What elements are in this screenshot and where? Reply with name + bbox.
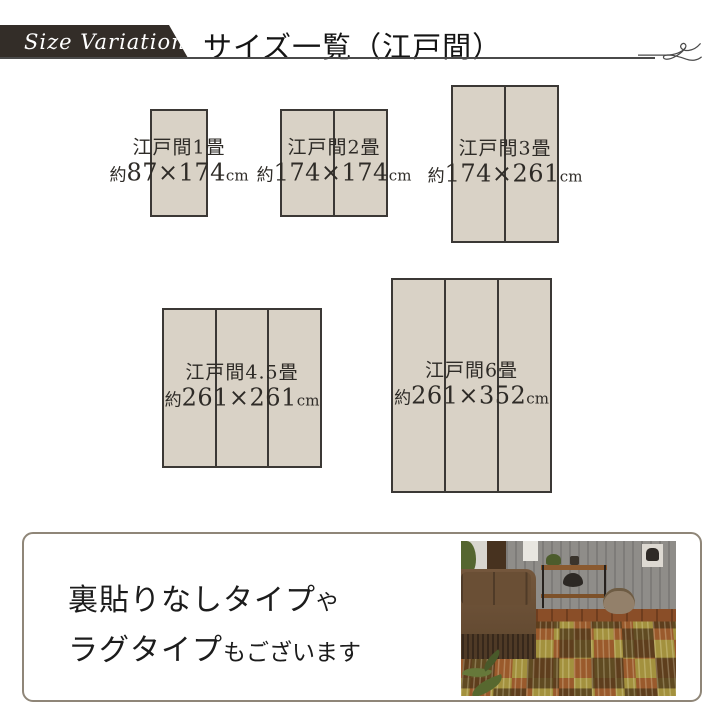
photo-sofa (461, 569, 536, 659)
flourish-ornament-icon (638, 30, 710, 74)
size-diagram-edoma-2jo: 江戸間2畳 約174×174cm (280, 109, 388, 217)
photo-hanging-cloth (523, 541, 538, 561)
dims-value: 174×174 (274, 159, 389, 187)
photo-basket (603, 588, 635, 614)
approx-prefix: 約 (428, 167, 445, 187)
unit-label: cm (526, 389, 549, 407)
note-line1-small: や (316, 591, 338, 616)
header-divider-line (0, 57, 655, 59)
page-title: サイズ一覧（江戸間） (203, 24, 502, 66)
size-label: 江戸間4.5畳 約261×261cm (165, 362, 320, 415)
size-name: 江戸間4.5畳 (165, 362, 320, 384)
other-types-note-box: 裏貼りなしタイプや ラグタイプもございます (22, 532, 702, 702)
unit-label: cm (297, 392, 320, 410)
size-dimensions: 約87×174cm (109, 159, 248, 190)
note-line-1: 裏貼りなしタイプや (68, 578, 361, 628)
page: Size Variation サイズ一覧（江戸間） 江戸間1畳 約87×174c… (0, 0, 720, 720)
shelf-leg (542, 565, 544, 607)
note-line2-main: ラグタイプ (68, 633, 223, 668)
approx-prefix: 約 (257, 166, 274, 186)
photo-shelf-rack (541, 550, 608, 607)
size-dimensions: 約261×352cm (394, 381, 549, 412)
shelf-plant (546, 554, 561, 565)
unit-label: cm (389, 167, 412, 185)
size-dimensions: 約174×261cm (428, 160, 583, 191)
shelf-pot (570, 556, 579, 565)
room-photo (461, 541, 676, 696)
other-types-note-text: 裏貼りなしタイプや ラグタイプもございます (68, 578, 361, 678)
size-label: 江戸間1畳 約87×174cm (109, 137, 248, 190)
size-name: 江戸間2畳 (257, 137, 412, 159)
size-name: 江戸間1畳 (109, 137, 248, 159)
note-line2-small: もございます (223, 640, 361, 666)
approx-prefix: 約 (394, 388, 411, 408)
approx-prefix: 約 (165, 391, 182, 411)
size-name: 江戸間3畳 (428, 138, 583, 160)
shelf-board (541, 565, 608, 570)
dims-value: 261×352 (411, 381, 526, 409)
dims-value: 174×261 (445, 160, 560, 188)
size-label: 江戸間6畳 約261×352cm (394, 359, 549, 412)
size-variation-ribbon: Size Variation (0, 25, 188, 58)
unit-label: cm (226, 167, 249, 185)
size-diagram-edoma-1jo: 江戸間1畳 約87×174cm (150, 109, 208, 217)
size-diagram-edoma-4-5jo: 江戸間4.5畳 約261×261cm (162, 308, 322, 468)
dims-value: 87×174 (126, 159, 225, 187)
shelf-board (541, 594, 608, 599)
approx-prefix: 約 (109, 166, 126, 186)
size-label: 江戸間2畳 約174×174cm (257, 137, 412, 190)
photo-wall-hanging (642, 544, 664, 567)
size-diagram-edoma-3jo: 江戸間3畳 約174×261cm (451, 85, 559, 243)
size-name: 江戸間6畳 (394, 359, 549, 381)
unit-label: cm (560, 168, 583, 186)
shelf-pan (563, 573, 583, 587)
size-diagram-edoma-6jo: 江戸間6畳 約261×352cm (391, 278, 552, 493)
note-line1-main: 裏貼りなしタイプ (68, 583, 316, 618)
dims-value: 261×261 (182, 384, 297, 412)
size-label: 江戸間3畳 約174×261cm (428, 138, 583, 191)
size-dimensions: 約174×174cm (257, 159, 412, 190)
size-dimensions: 約261×261cm (165, 384, 320, 415)
ribbon-label: Size Variation (24, 30, 186, 54)
note-line-2: ラグタイプもございます (68, 628, 361, 678)
